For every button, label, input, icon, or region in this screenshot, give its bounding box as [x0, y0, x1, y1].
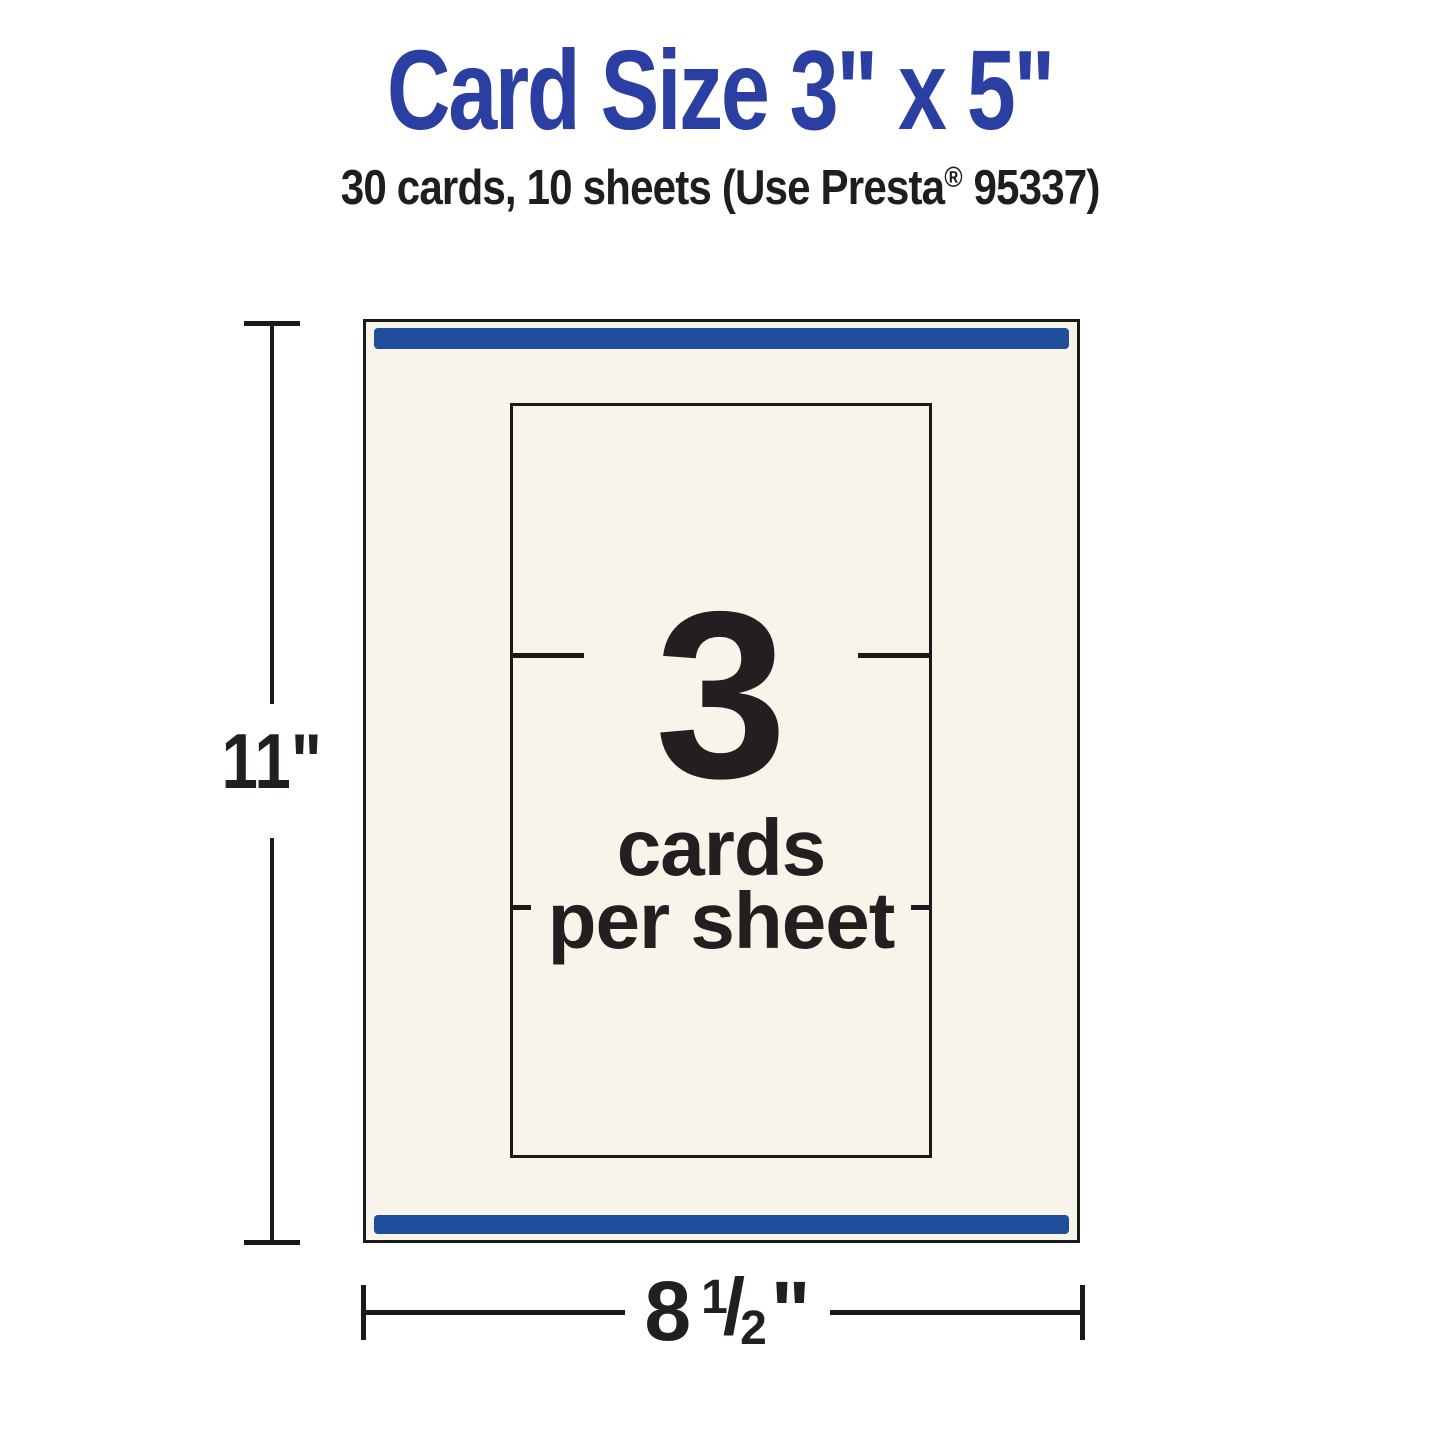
- subtitle-prefix: 30 cards, 10 sheets (Use Presta: [341, 161, 944, 215]
- width-dimension-right-cap: [1080, 1285, 1085, 1340]
- sheet-top-accent-bar: [374, 328, 1069, 349]
- page-title: Card Size 3" x 5": [0, 34, 1440, 147]
- registered-trademark-symbol: ®: [944, 162, 962, 194]
- sheet-bottom-accent-bar: [374, 1215, 1069, 1234]
- width-unit-mark: ": [771, 1264, 811, 1358]
- cards-count: 3: [513, 577, 929, 815]
- page-subtitle: 30 cards, 10 sheets (Use Presta® 95337): [0, 164, 1440, 220]
- page-subtitle-text: 30 cards, 10 sheets (Use Presta® 95337): [341, 164, 1100, 220]
- width-dimension-label: 81/2": [545, 1269, 910, 1367]
- width-whole-number: 8: [644, 1264, 691, 1358]
- height-dimension-upper-segment: [270, 322, 274, 704]
- per-sheet-label: per sheet: [513, 881, 929, 961]
- height-dimension-lower-segment: [270, 838, 274, 1243]
- height-dimension-bottom-cap: [244, 1240, 300, 1245]
- height-dimension-label-text: 11": [222, 722, 322, 800]
- page-title-text: Card Size 3" x 5": [387, 34, 1053, 147]
- sheet-diagram: 3 cards per sheet: [363, 319, 1080, 1243]
- width-fraction-denominator: 2: [740, 1302, 767, 1355]
- product-diagram-canvas: Card Size 3" x 5" 30 cards, 10 sheets (U…: [0, 0, 1440, 1440]
- width-dimension-right-segment: [830, 1310, 1082, 1315]
- height-dimension-label: 11": [152, 722, 392, 800]
- subtitle-suffix: 95337): [962, 161, 1099, 215]
- card-outline: 3 cards per sheet: [510, 403, 932, 1158]
